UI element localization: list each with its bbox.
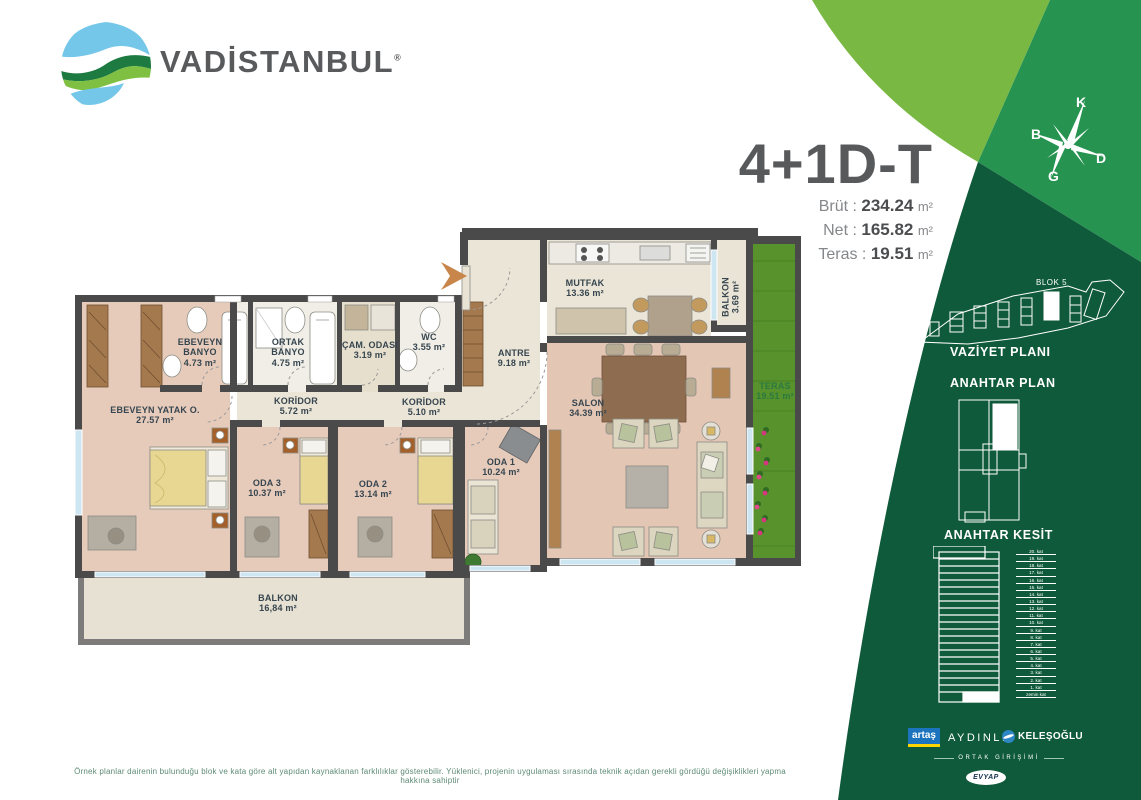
site-plan-diagram [918,276,1128,348]
room-label-oda-3: ODA 310.37 m² [248,478,286,499]
vaziyet-plani-title: VAZİYET PLANI [950,345,1051,359]
brochure-page: VADİSTANBUL® 4+1D-T Brüt : 234.24 m² Net… [0,0,1141,800]
room-label-ebeveyn-yatak: EBEVEYN YATAK O.27.57 m² [110,405,199,426]
floor-label: 19. kat [1016,555,1056,562]
disclaimer-text: Örnek planlar dairenin bulunduğu blok ve… [60,767,800,785]
floor-label: 4. kat [1016,662,1056,669]
floor-label: 15. kat [1016,584,1056,591]
anahtar-kesit-title: ANAHTAR KESİT [944,528,1053,542]
room-label-salon: SALON34.39 m² [569,398,607,419]
floor-label: 13. kat [1016,598,1056,605]
floor-label: 20. kat [1016,548,1056,555]
floor-label: 17. kat [1016,569,1056,576]
floor-label: 11. kat [1016,612,1056,619]
room-label-wc: WC3.55 m² [413,332,445,353]
room-label-ortak-banyo: ORTAK BANYO4.75 m² [256,337,320,368]
room-label-teras: TERAS19.51 m² [756,381,794,402]
floor-label: 8. kat [1016,634,1056,641]
floor-label: 16. kat [1016,577,1056,584]
joint-venture-row: ORTAK GİRİŞİMİ [934,755,1064,761]
floor-label: 5. kat [1016,655,1056,662]
room-label-mutfak: MUTFAK13.36 m² [566,278,605,299]
kelesoglu-globe-icon [1002,730,1015,743]
floor-label: 7. kat [1016,641,1056,648]
room-label-ebeveyn-banyo: EBEVEYN BANYO4.73 m² [168,337,232,368]
floor-label: 1. kat [1016,684,1056,691]
artas-logo: artaş [908,728,940,747]
floor-label: 14. kat [1016,591,1056,598]
room-label-oda-2: ODA 213.14 m² [354,479,392,500]
room-label-cam-odasi: ÇAM. ODASI3.19 m² [342,340,398,361]
floor-label: zemin kat [1016,691,1056,698]
key-section-diagram [933,546,1015,706]
joint-venture-label: ORTAK GİRİŞİMİ [954,755,1043,761]
room-label-antre: ANTRE9.18 m² [498,348,530,369]
room-label-balkon-small: BALKON3.69 m² [721,277,742,317]
aydinli-logo: AYDINLI [948,732,1007,744]
divider-line [934,758,954,759]
room-label-oda-1: ODA 110.24 m² [482,457,520,478]
floor-label: 10. kat [1016,619,1056,626]
room-label-koridor-1: KORİDOR5.72 m² [274,396,318,417]
floor-label: 9. kat [1016,627,1056,634]
floor-label: 18. kat [1016,562,1056,569]
key-plan-diagram [953,394,1037,526]
floor-label: 2. kat [1016,677,1056,684]
anahtar-plan-title: ANAHTAR PLAN [950,376,1056,390]
kelesoglu-logo: KELEŞOĞLU [1018,731,1083,742]
room-label-balkon-big: BALKON16,84 m² [258,593,298,614]
floor-label-list: 20. kat19. kat18. kat17. kat16. kat15. k… [1016,548,1056,698]
floor-label: 12. kat [1016,605,1056,612]
divider-line [1044,758,1064,759]
room-label-koridor-2: KORİDOR5.10 m² [402,397,446,418]
floor-label: 3. kat [1016,669,1056,676]
floor-label: 6. kat [1016,648,1056,655]
evyap-logo: EVYAP [966,770,1006,785]
